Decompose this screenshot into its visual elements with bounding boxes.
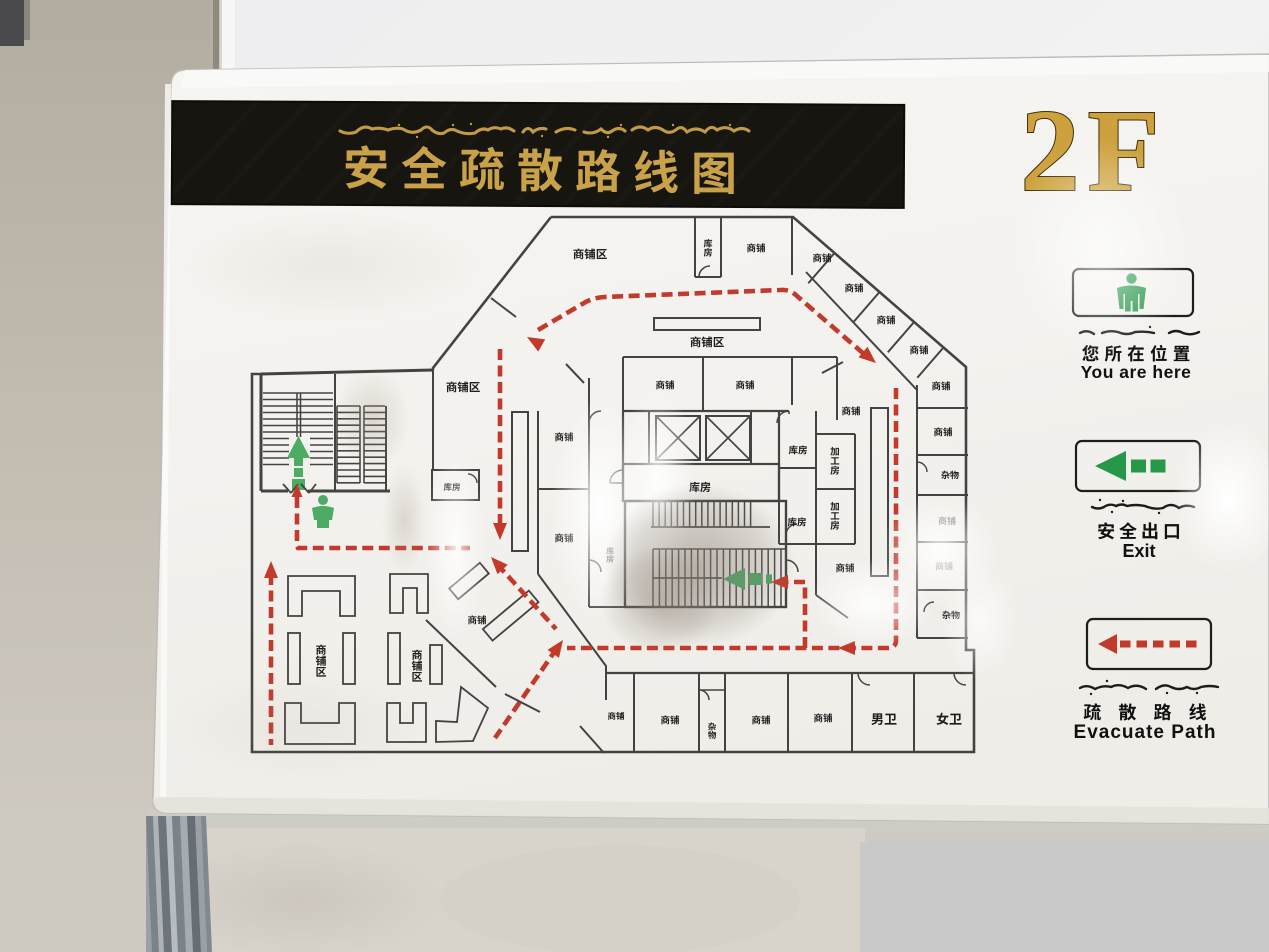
svg-text:Evacuate Path: Evacuate Path (1074, 722, 1217, 743)
svg-text:You are here: You are here (1081, 362, 1192, 382)
svg-text:Exit: Exit (1122, 541, 1155, 561)
